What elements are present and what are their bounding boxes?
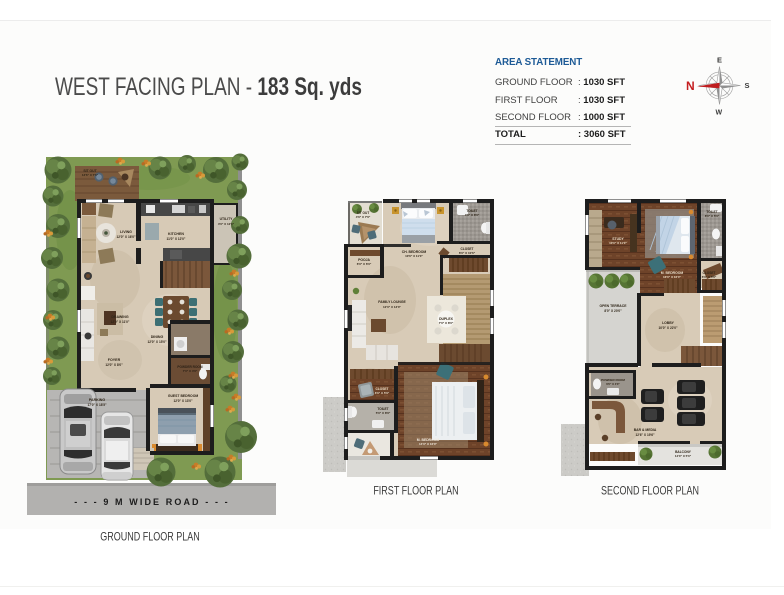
svg-text:12'6" X 19'6": 12'6" X 19'6": [635, 433, 655, 437]
svg-text:12'0" X 16'0": 12'0" X 16'0": [116, 235, 136, 239]
svg-text:KITCHEN: KITCHEN: [168, 232, 184, 236]
svg-text:BAR & MEDIA: BAR & MEDIA: [634, 428, 657, 432]
svg-text:6'6" X 5'6": 6'6" X 5'6": [375, 391, 390, 395]
svg-text:LIVING: LIVING: [120, 230, 132, 234]
svg-text:17'0" X 18'5": 17'0" X 18'5": [87, 403, 107, 407]
svg-text:7'0" X 4'6": 7'0" X 4'6": [183, 369, 198, 373]
svg-text:5'0" X 8'6": 5'0" X 8'6": [376, 411, 391, 415]
svg-text:S: S: [745, 81, 750, 90]
svg-text:6'0" X 6'0": 6'0" X 6'0": [357, 262, 372, 266]
svg-text:12'0" X 13'0": 12'0" X 13'0": [383, 305, 402, 309]
svg-text:PARKING: PARKING: [89, 398, 106, 402]
svg-text:14'0" X 5'0": 14'0" X 5'0": [675, 454, 692, 458]
svg-text:12'0" X 15'0": 12'0" X 15'0": [147, 340, 167, 344]
svg-text:6'0" X 4'0": 6'0" X 4'0": [606, 382, 620, 386]
svg-text:4'6" X 8'0": 4'6" X 8'0": [465, 213, 480, 217]
svg-text:8'0" X 20'0": 8'0" X 20'0": [604, 309, 622, 313]
svg-text:DINING: DINING: [151, 335, 164, 339]
svg-text:OPEN TERRACE: OPEN TERRACE: [600, 304, 628, 308]
svg-text:11'0" X 12'0": 11'0" X 12'0": [167, 237, 186, 241]
svg-text:N: N: [686, 79, 695, 93]
svg-text:4'6" X 7'6": 4'6" X 7'6": [356, 215, 371, 219]
svg-text:W: W: [716, 110, 723, 117]
svg-text:10'0" X 11'0": 10'0" X 11'0": [609, 241, 627, 245]
svg-text:12'0" X 13'0": 12'0" X 13'0": [173, 399, 193, 403]
svg-text:10'0" X 22'0": 10'0" X 22'0": [658, 326, 678, 330]
svg-text:FAMILY LOUNGE: FAMILY LOUNGE: [378, 300, 406, 304]
svg-text:6'0" X 5'6": 6'0" X 5'6": [702, 275, 717, 279]
svg-text:7'0" X 8'0": 7'0" X 8'0": [439, 321, 454, 325]
svg-text:13'6" X 7'6": 13'6" X 7'6": [82, 173, 99, 177]
svg-text:13'0" X 16'0": 13'0" X 16'0": [663, 275, 682, 279]
svg-text:6'0" X 10'6": 6'0" X 10'6": [459, 251, 476, 255]
svg-text:14'0" X 16'0": 14'0" X 16'0": [419, 442, 438, 446]
svg-text:- - - 9 M WIDE ROAD - - -: - - - 9 M WIDE ROAD - - -: [74, 497, 230, 507]
svg-text:LOBBY: LOBBY: [662, 321, 675, 325]
svg-text:UTILITY: UTILITY: [220, 217, 234, 221]
svg-text:10'6" X 11'0": 10'6" X 11'0": [405, 254, 423, 258]
svg-text:12'0" X 8'0": 12'0" X 8'0": [105, 363, 123, 367]
svg-text:E: E: [717, 56, 722, 65]
svg-text:12'0" X 11'0": 12'0" X 11'0": [111, 320, 130, 324]
svg-text:DRAWING: DRAWING: [111, 315, 129, 319]
svg-text:4'0" X 12'0": 4'0" X 12'0": [218, 222, 235, 226]
svg-text:FOYER: FOYER: [108, 358, 121, 362]
svg-text:GUEST BEDROOM: GUEST BEDROOM: [168, 394, 199, 398]
svg-text:8'0" X 5'0": 8'0" X 5'0": [705, 214, 720, 218]
